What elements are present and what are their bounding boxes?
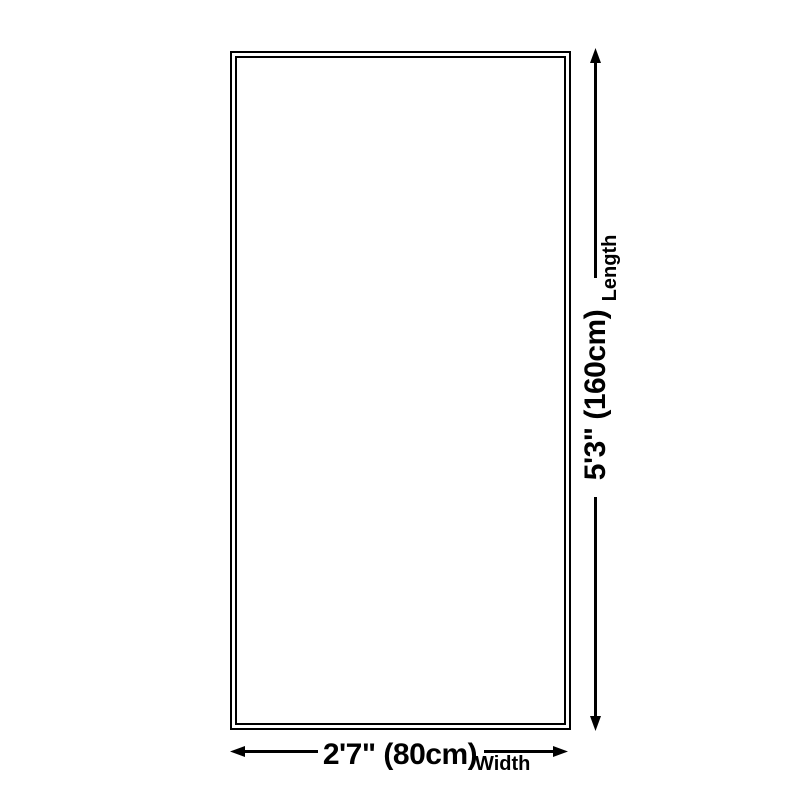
dimension-diagram: 5'3" (160cm) Length 2'7" (80cm) Width xyxy=(0,0,800,800)
length-value-label: 5'3" (160cm) xyxy=(581,310,611,480)
length-axis-label: Length xyxy=(600,235,620,302)
dimension-arrows xyxy=(0,0,800,800)
right-arrowhead-icon xyxy=(553,746,568,757)
width-value-label: 2'7" (80cm) xyxy=(323,740,477,770)
down-arrowhead-icon xyxy=(590,716,601,731)
width-axis-label: Width xyxy=(475,754,530,774)
